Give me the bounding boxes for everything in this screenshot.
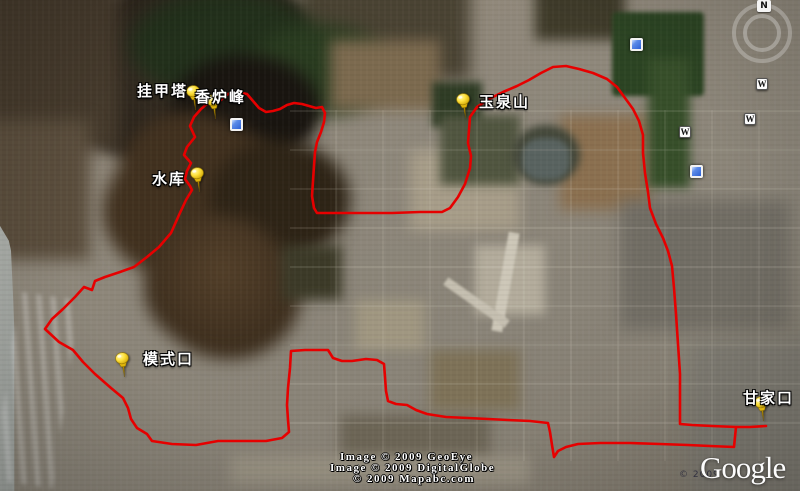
gps-track-route (0, 0, 800, 491)
satellite-map-view[interactable]: WWW 挂甲塔香炉峰水库玉泉山模式口甘家口 N Image © 2009 Geo… (0, 0, 800, 491)
photo-icon[interactable] (230, 118, 243, 131)
north-indicator[interactable]: N (757, 0, 771, 12)
photo-icon[interactable] (630, 38, 643, 51)
compass-ring[interactable]: N (732, 3, 792, 63)
wikipedia-icon[interactable]: W (756, 78, 768, 90)
wikipedia-icon[interactable]: W (679, 126, 691, 138)
placemark-label-xianglufeng: 香炉峰 (195, 86, 246, 107)
photo-icon[interactable] (690, 165, 703, 178)
google-logo: Google (700, 450, 785, 486)
placemark-label-yuquanshan: 玉泉山 (479, 91, 530, 112)
placemark-label-ganjiakou: 甘家口 (743, 387, 794, 408)
compass-inner-ring (743, 14, 781, 52)
placemark-label-moshikou: 模式口 (143, 348, 194, 369)
wikipedia-icon[interactable]: W (744, 113, 756, 125)
placemark-label-shuiku: 水库 (152, 168, 186, 189)
placemark-label-guajiata: 挂甲塔 (137, 80, 188, 101)
attribution-mapabc: © 2009 Mapabc.com (353, 473, 475, 485)
